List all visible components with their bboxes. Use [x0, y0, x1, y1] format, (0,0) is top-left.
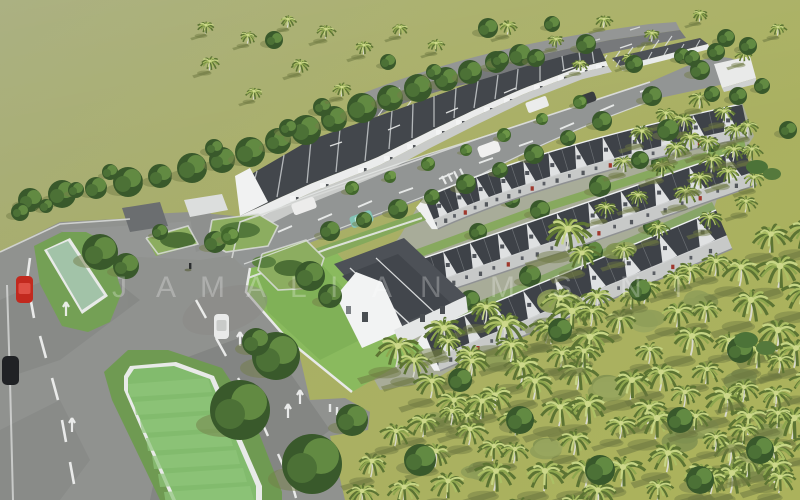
- svg-text:N: N: [420, 271, 442, 304]
- svg-text:M: M: [490, 271, 515, 304]
- svg-text:M: M: [200, 271, 225, 304]
- svg-text:I: I: [330, 271, 338, 304]
- svg-text:N: N: [620, 271, 642, 304]
- svg-text:I: I: [674, 271, 682, 304]
- svg-text:L: L: [290, 271, 307, 304]
- svg-text:A: A: [372, 271, 392, 304]
- svg-text:A: A: [156, 271, 176, 304]
- svg-text:S: S: [552, 271, 572, 304]
- svg-text:A: A: [246, 271, 266, 304]
- svg-text:J: J: [112, 271, 127, 304]
